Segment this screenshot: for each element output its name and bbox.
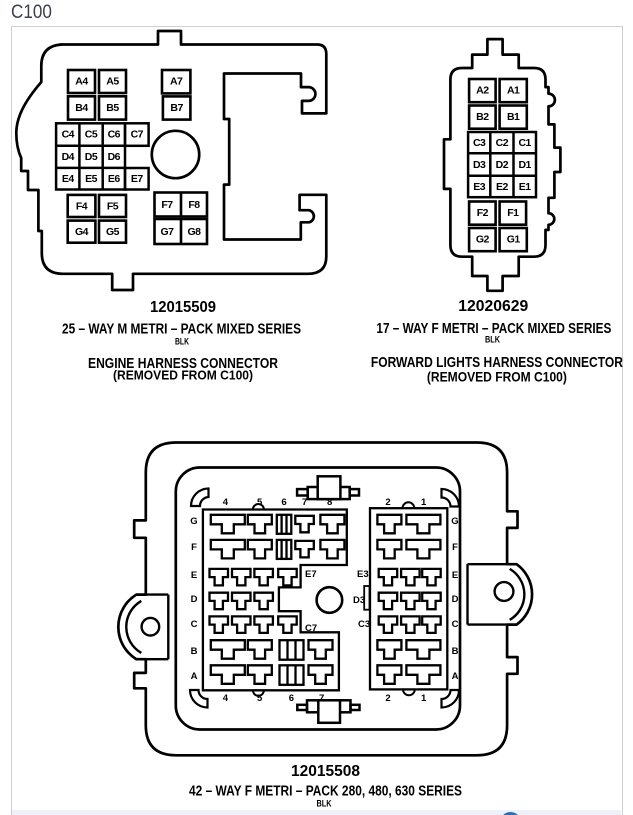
svg-text:G4: G4 <box>75 226 89 238</box>
svg-text:C4: C4 <box>62 129 75 141</box>
svg-text:F: F <box>452 542 458 553</box>
svg-text:42 – WAY F METRI – PACK 280, 4: 42 – WAY F METRI – PACK 280, 480, 630 SE… <box>189 784 462 800</box>
svg-text:2: 2 <box>385 693 390 704</box>
svg-text:A4: A4 <box>75 76 88 88</box>
svg-text:2: 2 <box>385 497 390 508</box>
svg-text:B: B <box>452 646 459 657</box>
svg-text:(REMOVED FROM C100): (REMOVED FROM C100) <box>113 368 253 383</box>
svg-text:E1: E1 <box>519 181 532 193</box>
svg-text:7: 7 <box>302 497 307 508</box>
svg-text:5: 5 <box>257 497 263 508</box>
svg-text:F5: F5 <box>107 201 119 213</box>
svg-text:5: 5 <box>257 693 263 704</box>
svg-text:BLK: BLK <box>485 335 500 346</box>
svg-text:E6: E6 <box>108 173 121 185</box>
svg-text:B7: B7 <box>170 102 183 114</box>
svg-text:D4: D4 <box>62 151 75 163</box>
svg-text:12015508: 12015508 <box>291 763 360 780</box>
svg-text:A1: A1 <box>507 85 520 97</box>
svg-text:C6: C6 <box>108 129 121 141</box>
svg-text:F4: F4 <box>76 201 88 213</box>
svg-text:D3: D3 <box>353 595 365 606</box>
svg-text:C7: C7 <box>305 623 317 634</box>
svg-text:C3: C3 <box>473 137 486 149</box>
svg-text:G1: G1 <box>507 234 521 246</box>
svg-text:G2: G2 <box>476 234 490 246</box>
svg-text:E4: E4 <box>62 173 75 185</box>
svg-text:D5: D5 <box>85 151 98 163</box>
svg-text:D1: D1 <box>518 159 531 171</box>
svg-text:F8: F8 <box>188 199 200 211</box>
svg-text:C7: C7 <box>131 129 144 141</box>
svg-text:E7: E7 <box>131 173 144 185</box>
svg-text:C1: C1 <box>518 137 531 149</box>
svg-text:B4: B4 <box>75 102 88 114</box>
svg-text:A7: A7 <box>170 76 183 88</box>
svg-text:D3: D3 <box>473 159 486 171</box>
svg-text:C: C <box>452 619 459 630</box>
svg-text:E3: E3 <box>473 181 486 193</box>
svg-text:1: 1 <box>421 693 427 704</box>
svg-text:C: C <box>191 619 198 630</box>
svg-text:D: D <box>452 594 459 605</box>
svg-text:E3: E3 <box>357 569 369 580</box>
svg-text:6: 6 <box>281 497 286 508</box>
svg-text:BLK: BLK <box>317 799 332 810</box>
svg-text:BLK: BLK <box>175 337 189 348</box>
svg-text:E5: E5 <box>85 173 98 185</box>
svg-text:7: 7 <box>319 693 324 704</box>
svg-text:4: 4 <box>223 497 229 508</box>
svg-text:A: A <box>191 671 198 682</box>
svg-text:6: 6 <box>289 693 294 704</box>
svg-text:A5: A5 <box>106 76 119 88</box>
svg-text:F: F <box>191 542 197 553</box>
svg-text:D6: D6 <box>108 151 121 163</box>
svg-text:G7: G7 <box>160 226 174 238</box>
svg-text:A2: A2 <box>476 85 489 97</box>
svg-text:D: D <box>191 594 198 605</box>
svg-text:B: B <box>191 646 198 657</box>
svg-text:G5: G5 <box>106 226 120 238</box>
svg-text:E7: E7 <box>305 569 317 580</box>
svg-text:G8: G8 <box>187 226 201 238</box>
svg-text:E: E <box>191 570 197 581</box>
svg-text:E2: E2 <box>496 181 509 193</box>
svg-text:C3: C3 <box>358 619 370 630</box>
svg-text:D2: D2 <box>496 159 509 171</box>
svg-text:25 – WAY M METRI – PACK MIXED: 25 – WAY M METRI – PACK MIXED SERIES <box>62 322 301 338</box>
svg-text:A: A <box>452 671 459 682</box>
svg-text:B5: B5 <box>106 102 119 114</box>
svg-text:F2: F2 <box>477 207 489 219</box>
svg-text:8: 8 <box>327 497 332 508</box>
svg-text:C5: C5 <box>85 129 98 141</box>
svg-text:1: 1 <box>421 497 427 508</box>
svg-text:4: 4 <box>223 693 229 704</box>
svg-text:G: G <box>451 516 458 527</box>
svg-text:12020629: 12020629 <box>458 298 528 315</box>
svg-text:B1: B1 <box>507 111 520 123</box>
svg-text:12015509: 12015509 <box>150 299 216 316</box>
svg-text:(REMOVED FROM C100): (REMOVED FROM C100) <box>427 369 567 385</box>
svg-text:F7: F7 <box>161 199 173 211</box>
svg-text:C2: C2 <box>496 137 509 149</box>
svg-text:F1: F1 <box>507 207 519 219</box>
svg-text:G: G <box>190 516 197 527</box>
svg-text:E: E <box>452 570 458 581</box>
svg-text:B2: B2 <box>476 111 489 123</box>
